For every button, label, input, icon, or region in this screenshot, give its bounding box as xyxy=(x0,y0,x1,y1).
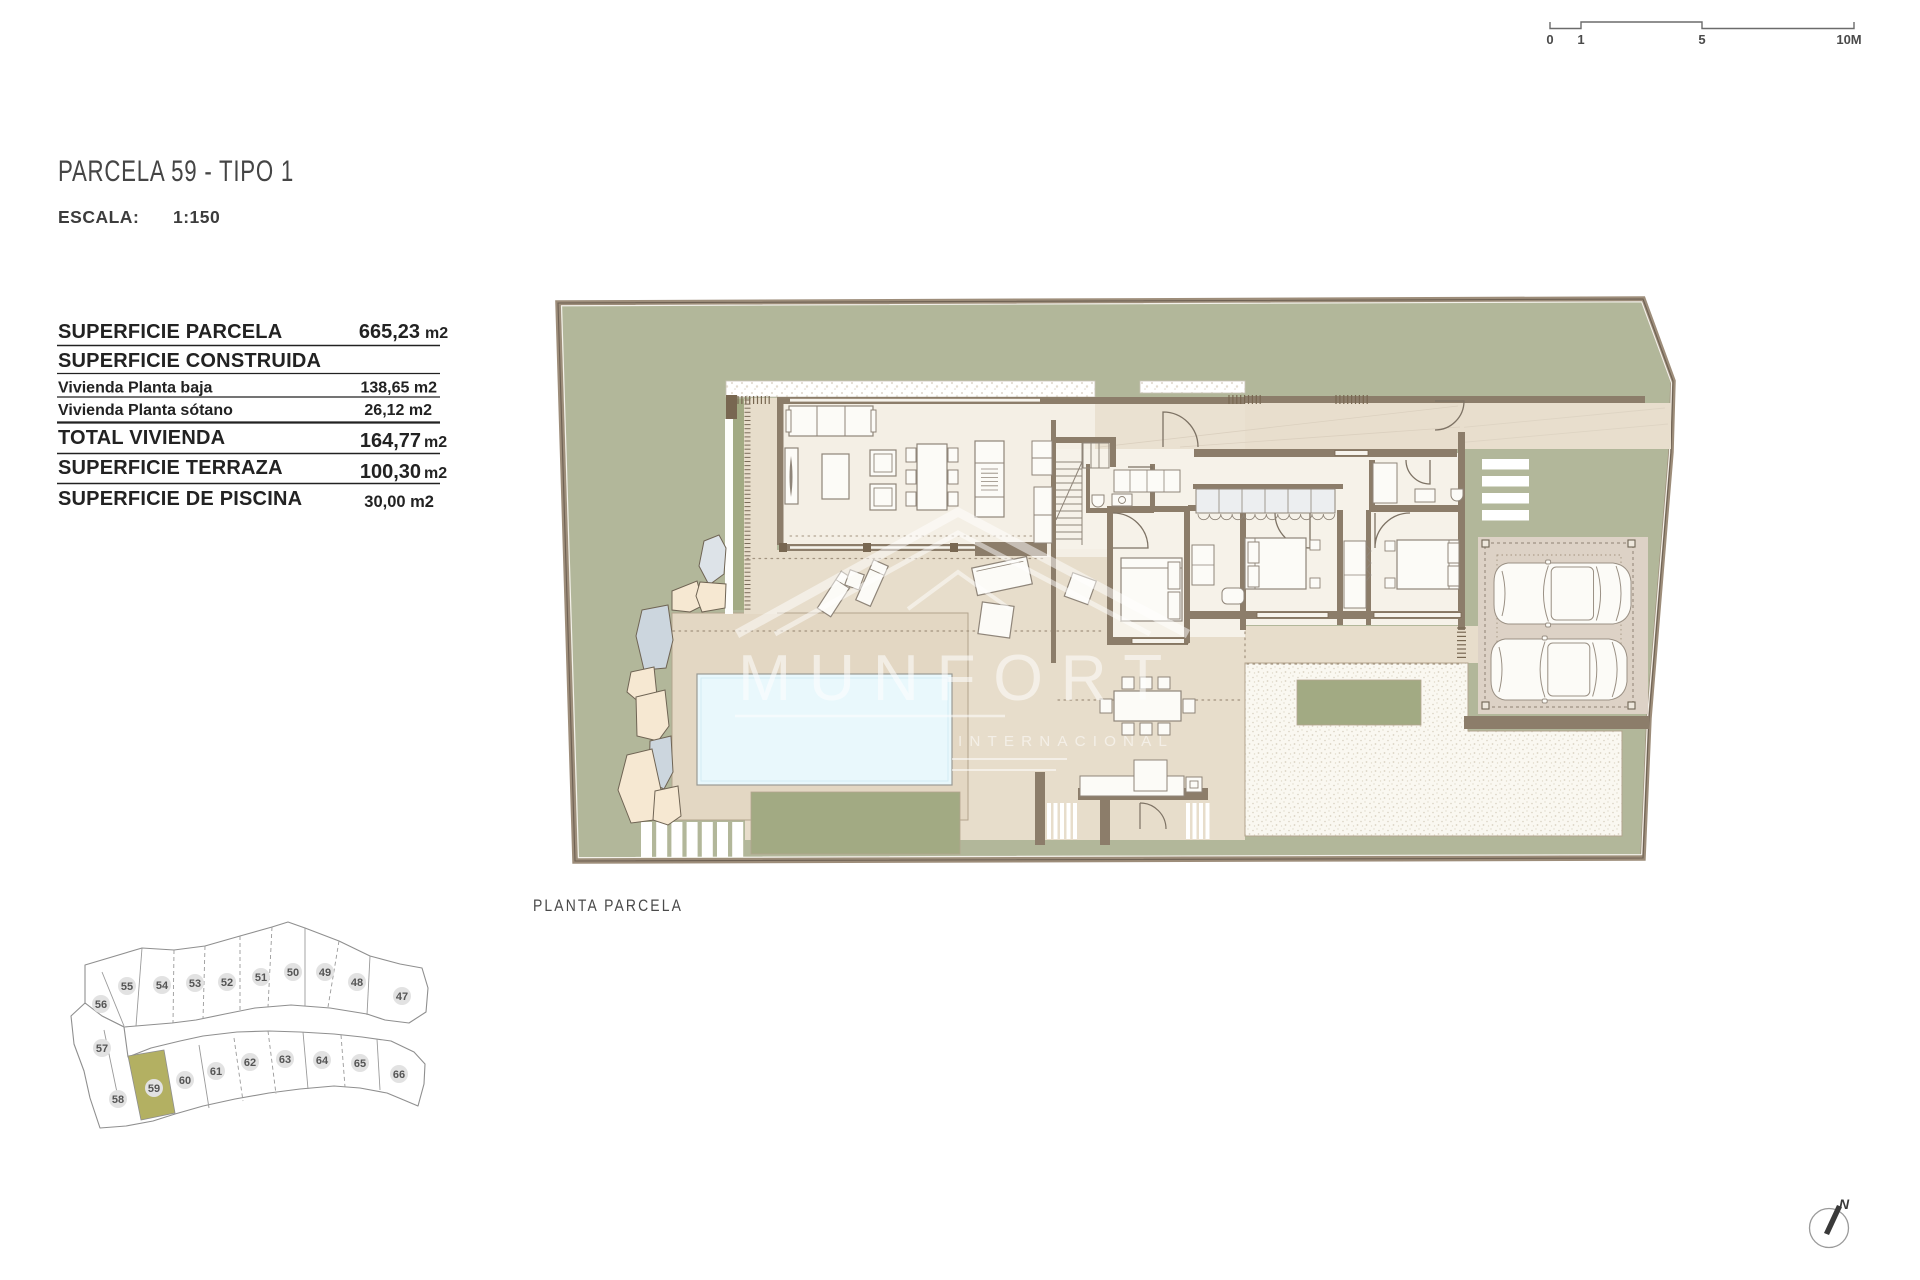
svg-text:60: 60 xyxy=(179,1075,191,1087)
svg-text:55: 55 xyxy=(121,981,133,993)
svg-text:26,12 m2: 26,12 m2 xyxy=(364,402,432,419)
svg-text:52: 52 xyxy=(221,977,233,989)
svg-text:56: 56 xyxy=(95,999,107,1011)
svg-text:ESCALA:: ESCALA: xyxy=(58,207,139,227)
svg-text:Vivienda Planta sótano: Vivienda Planta sótano xyxy=(58,402,233,419)
svg-text:Vivienda Planta baja: Vivienda Planta baja xyxy=(58,380,213,397)
svg-text:57: 57 xyxy=(96,1043,108,1055)
svg-text:63: 63 xyxy=(279,1054,291,1066)
svg-text:48: 48 xyxy=(351,977,363,989)
svg-text:49: 49 xyxy=(319,967,331,979)
svg-text:64: 64 xyxy=(316,1055,329,1067)
svg-text:61: 61 xyxy=(210,1066,222,1078)
svg-text:SUPERFICIE TERRAZA: SUPERFICIE TERRAZA xyxy=(58,457,283,479)
svg-text:65: 65 xyxy=(354,1058,366,1070)
svg-text:665,23: 665,23 xyxy=(359,321,420,343)
svg-text:TOTAL VIVIENDA: TOTAL VIVIENDA xyxy=(58,427,225,449)
svg-text:m2: m2 xyxy=(425,325,448,342)
svg-text:54: 54 xyxy=(156,980,169,992)
svg-text:50: 50 xyxy=(287,967,299,979)
svg-text:10M: 10M xyxy=(1836,32,1861,47)
svg-text:51: 51 xyxy=(255,972,267,984)
svg-text:59: 59 xyxy=(148,1083,160,1095)
svg-text:164,77: 164,77 xyxy=(360,430,421,452)
svg-text:PLANTA PARCELA: PLANTA PARCELA xyxy=(533,897,683,915)
svg-text:5: 5 xyxy=(1698,32,1705,47)
svg-text:47: 47 xyxy=(396,991,408,1003)
svg-text:66: 66 xyxy=(393,1069,405,1081)
svg-text:1: 1 xyxy=(1577,32,1584,47)
svg-text:PARCELA 59 - TIPO 1: PARCELA 59 - TIPO 1 xyxy=(58,155,294,188)
svg-text:30,00 m2: 30,00 m2 xyxy=(364,493,434,511)
svg-text:SUPERFICIE CONSTRUIDA: SUPERFICIE CONSTRUIDA xyxy=(58,350,321,372)
svg-text:m2: m2 xyxy=(424,434,447,451)
svg-text:MUNFORT: MUNFORT xyxy=(738,641,1180,714)
svg-text:INTERNACIONAL: INTERNACIONAL xyxy=(958,733,1174,750)
svg-text:58: 58 xyxy=(112,1094,124,1106)
svg-text:N: N xyxy=(1839,1196,1850,1212)
svg-text:SUPERFICIE PARCELA: SUPERFICIE PARCELA xyxy=(58,321,282,343)
svg-text:62: 62 xyxy=(244,1057,256,1069)
svg-text:m2: m2 xyxy=(424,465,447,482)
svg-text:SUPERFICIE DE PISCINA: SUPERFICIE DE PISCINA xyxy=(58,488,302,510)
svg-text:53: 53 xyxy=(189,978,201,990)
svg-text:138,65 m2: 138,65 m2 xyxy=(360,380,437,397)
svg-text:100,30: 100,30 xyxy=(360,461,421,483)
svg-text:1:150: 1:150 xyxy=(173,207,220,227)
svg-text:0: 0 xyxy=(1546,32,1553,47)
